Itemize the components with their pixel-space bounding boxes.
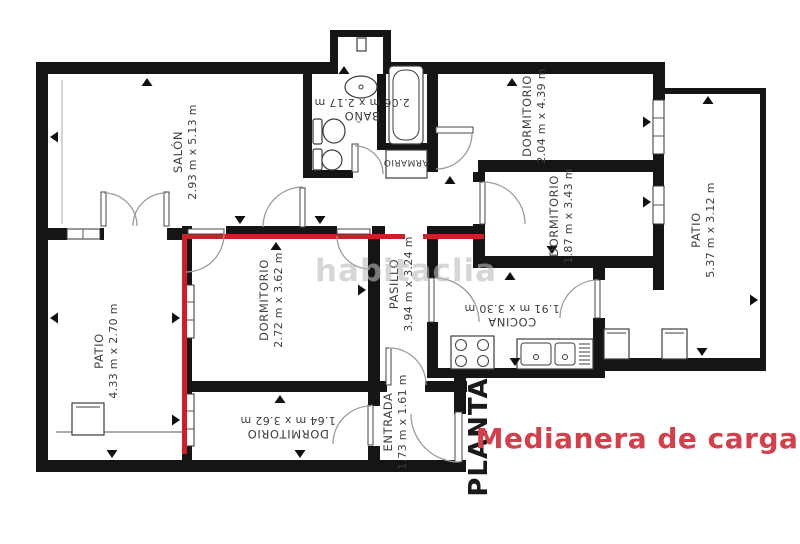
room-label-salon: SALÓN 2.93 m x 5.13 m: [170, 104, 199, 199]
room-label-armario: ARMARIO: [383, 157, 428, 167]
wall-arrow-icon: [172, 313, 180, 324]
wall-arrow-icon: [275, 395, 286, 403]
svg-text:5.37 m x 3.12 m: 5.37 m x 3.12 m: [704, 182, 717, 277]
svg-text:ARMARIO: ARMARIO: [383, 157, 428, 167]
wall-arrow-icon: [50, 132, 58, 143]
wall-arrow-icon: [507, 78, 518, 86]
bidet-icon: [313, 149, 322, 170]
svg-text:SALÓN: SALÓN: [170, 131, 185, 173]
svg-text:PATIO: PATIO: [689, 212, 703, 248]
medianera-line-horizontal: [182, 234, 405, 239]
svg-text:DORMITORIO: DORMITORIO: [247, 427, 329, 441]
wall-arrow-icon: [142, 78, 153, 86]
watermark: habitaclia: [315, 253, 497, 289]
svg-text:DORMITORIO: DORMITORIO: [547, 175, 561, 257]
wall-arrow-icon: [315, 216, 326, 224]
wall-arrow-icon: [697, 348, 708, 356]
medianera-line-horizontal: [423, 234, 484, 239]
svg-text:2.06 m x 2.17 m: 2.06 m x 2.17 m: [314, 96, 409, 109]
svg-text:4.33 m x 2.70 m: 4.33 m x 2.70 m: [107, 303, 120, 398]
room-label-dormitorio-center: DORMITORIO 2.72 m x 3.62 m: [257, 252, 285, 347]
floor-plan-page: SALÓN 2.93 m x 5.13 m BAÑO 2.06 m x 2.17…: [0, 0, 800, 544]
svg-text:2.93 m x 5.13 m: 2.93 m x 5.13 m: [186, 104, 199, 199]
svg-text:DORMITORIO: DORMITORIO: [257, 259, 271, 341]
room-label-patio-left: PATIO 4.33 m x 2.70 m: [92, 303, 120, 398]
wall-arrow-icon: [643, 117, 651, 128]
svg-text:1.73 m x 1.61 m: 1.73 m x 1.61 m: [396, 374, 409, 469]
wall-arrow-icon: [235, 216, 246, 224]
svg-text:1.87 m x 3.43 m: 1.87 m x 3.43 m: [562, 168, 575, 263]
wall-arrow-icon: [271, 242, 282, 250]
floor-plan-drawing: SALÓN 2.93 m x 5.13 m BAÑO 2.06 m x 2.17…: [0, 0, 800, 544]
wall-arrow-icon: [643, 197, 651, 208]
medianera-line-vertical: [182, 234, 187, 454]
svg-text:2.72 m x 3.62 m: 2.72 m x 3.62 m: [272, 252, 285, 347]
room-label-dormitorio-top: DORMITORIO 2.04 m x 4.39 m: [520, 68, 548, 163]
svg-text:PATIO: PATIO: [92, 333, 106, 369]
wall-arrow-icon: [750, 295, 758, 306]
wall-arrow-icon: [107, 450, 118, 458]
svg-text:1.64 m x 3.62 m: 1.64 m x 3.62 m: [240, 414, 335, 427]
svg-text:COCINA: COCINA: [488, 315, 537, 329]
wall-arrow-icon: [505, 272, 516, 280]
svg-text:ENTRADA: ENTRADA: [381, 392, 395, 451]
wall-arrow-icon: [295, 450, 306, 458]
patio-drain-icon: [72, 403, 104, 435]
room-label-patio-right: PATIO 5.37 m x 3.12 m: [689, 182, 717, 277]
wall-arrow-icon: [339, 66, 350, 74]
wall-arrow-icon: [172, 415, 180, 426]
window-icon: [653, 100, 664, 154]
cistern-icon: [357, 38, 366, 51]
wall-arrow-icon: [50, 313, 58, 324]
wall-arrow-icon: [703, 96, 714, 104]
room-label-dormitorio-right: DORMITORIO 1.87 m x 3.43 m: [547, 168, 575, 263]
room-label-dormitorio-bottom: DORMITORIO 1.64 m x 3.62 m: [240, 414, 335, 441]
room-label-cocina: COCINA 1.91 m x 3.30 m: [464, 302, 559, 329]
toilet-icon: [313, 119, 322, 144]
washbasin-icon: [345, 76, 377, 98]
wall-arrow-icon: [445, 176, 456, 184]
legend-medianera: Medianera de carga: [476, 422, 799, 455]
svg-text:DORMITORIO: DORMITORIO: [520, 75, 534, 157]
svg-text:2.04 m x 4.39 m: 2.04 m x 4.39 m: [535, 68, 548, 163]
svg-text:BAÑO: BAÑO: [344, 109, 380, 124]
svg-text:1.91 m x 3.30 m: 1.91 m x 3.30 m: [464, 302, 559, 315]
